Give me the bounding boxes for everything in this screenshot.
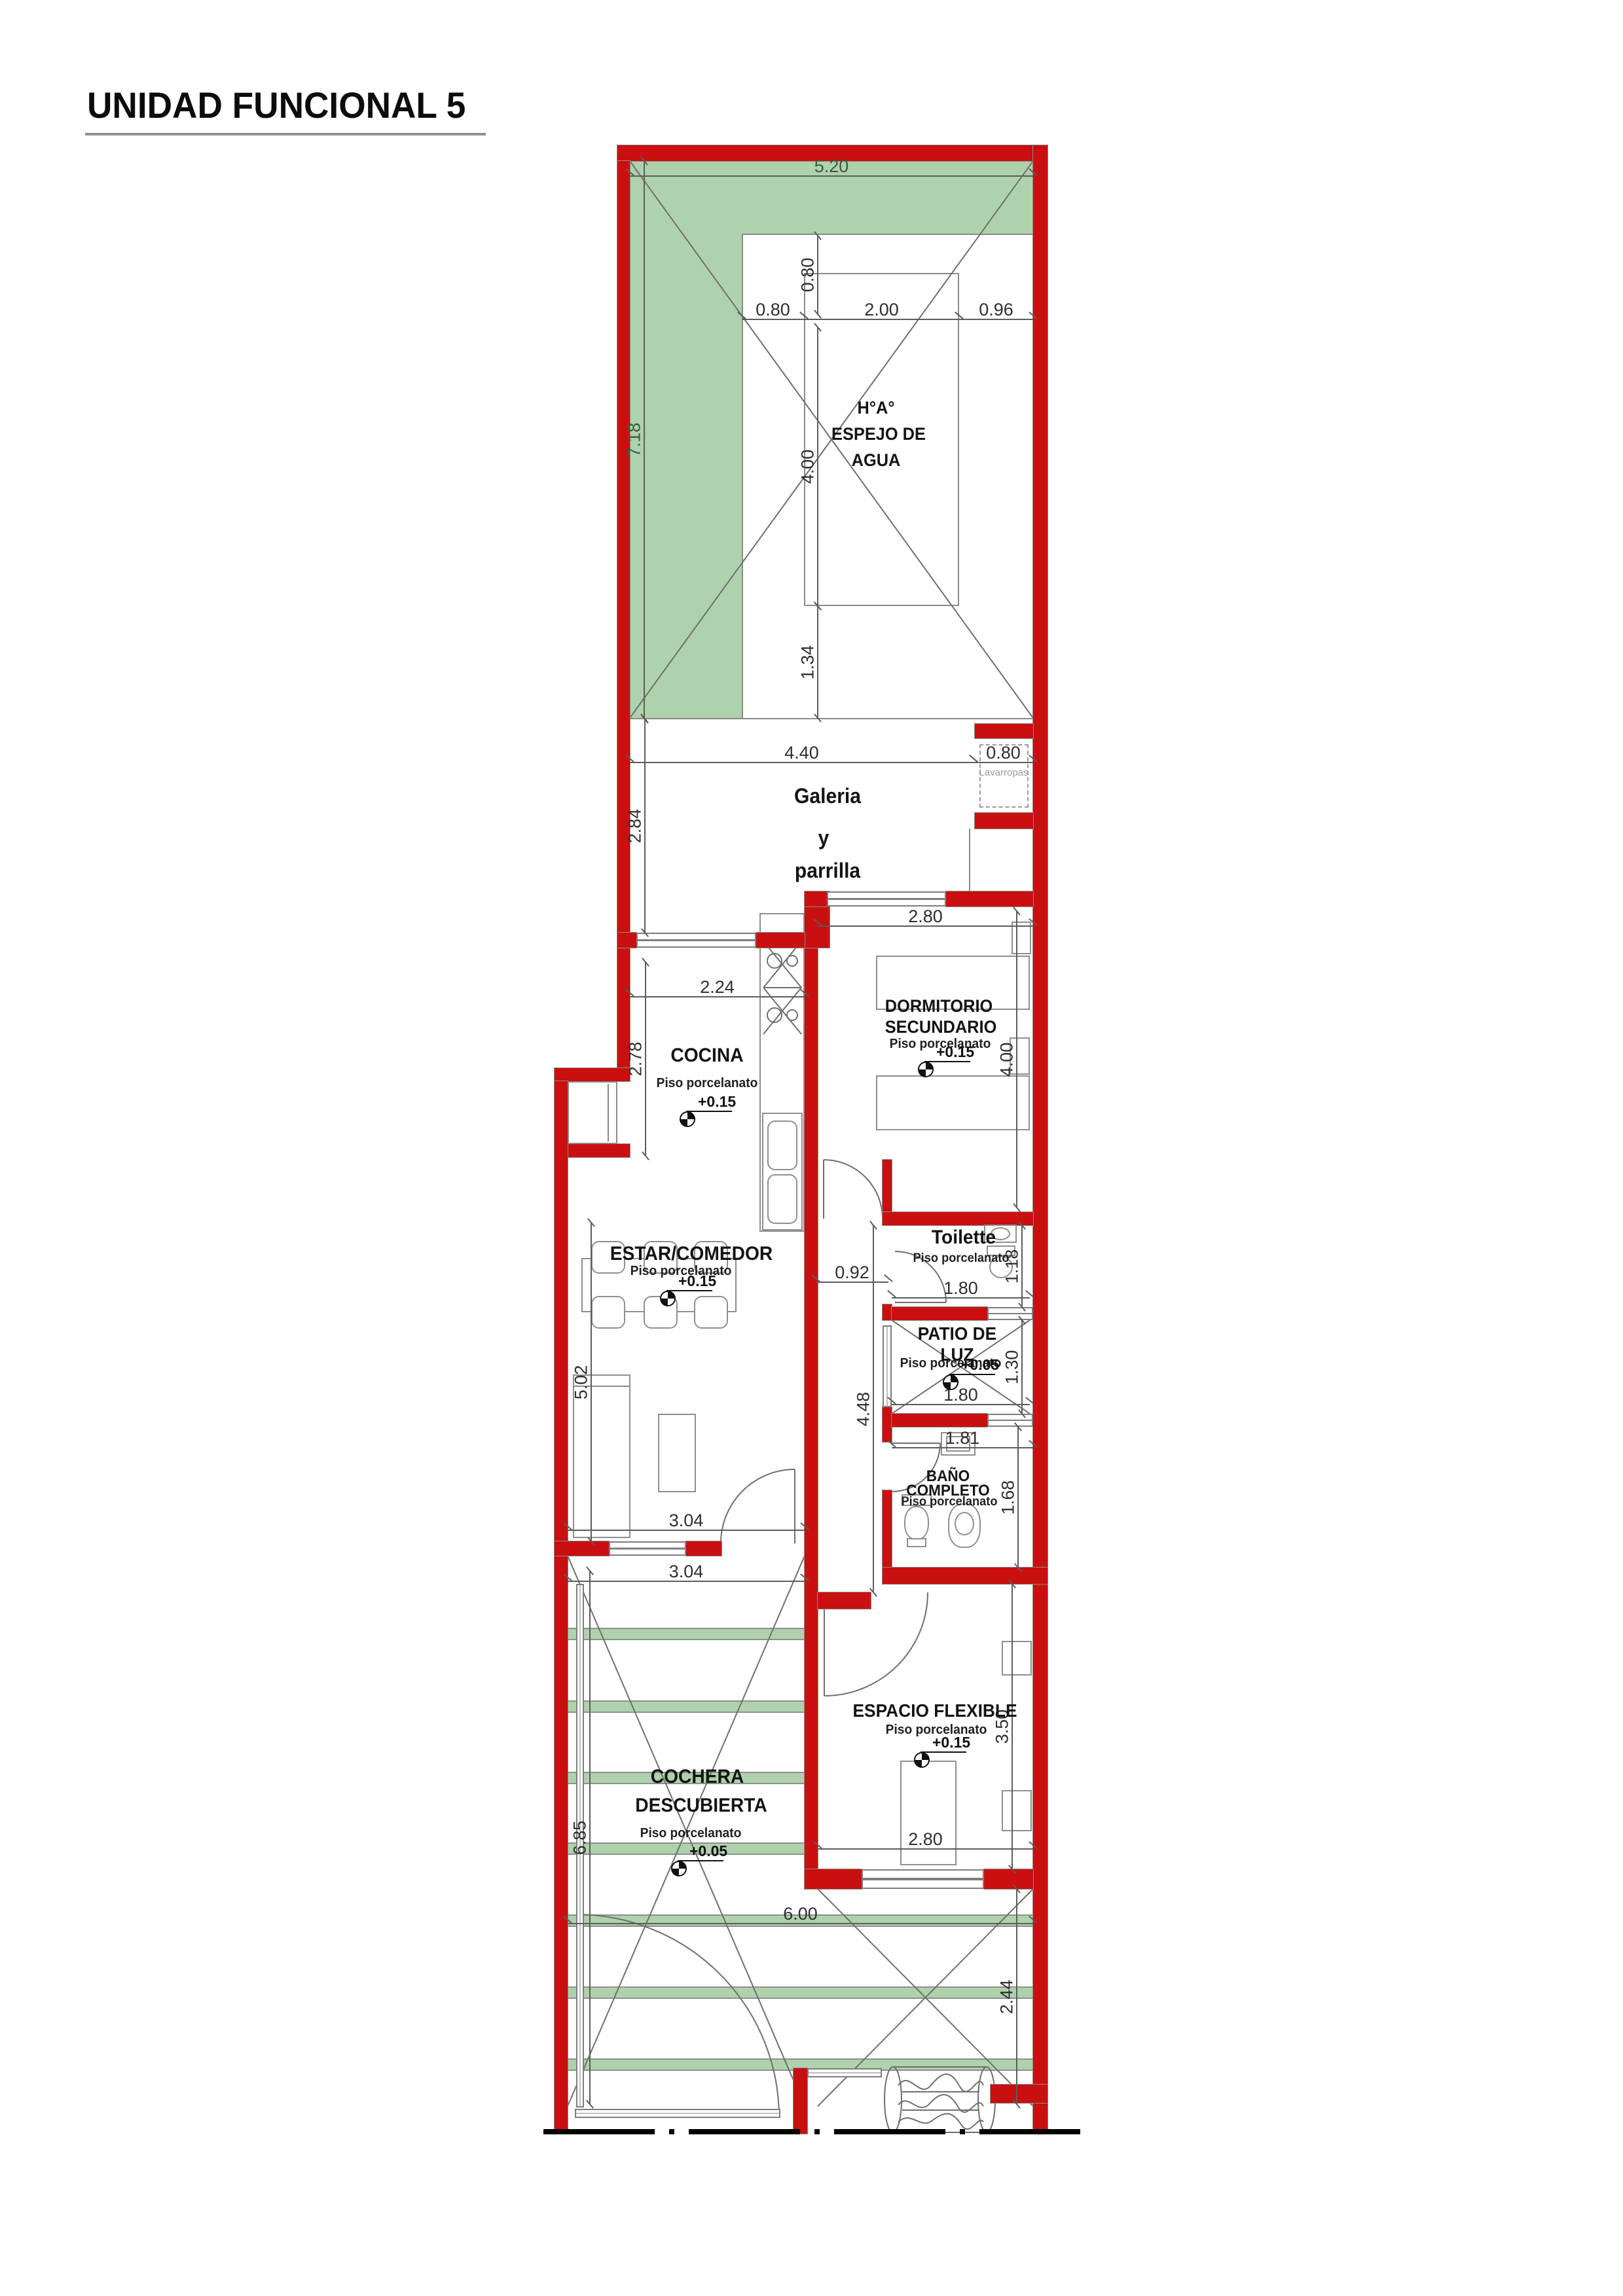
label-estar: ESTAR/COMEDOR xyxy=(610,1243,773,1265)
dim-pool-width: 2.00 xyxy=(804,319,959,320)
wall-middle xyxy=(805,891,818,1884)
dim-dorm-width: 2.80 xyxy=(818,925,1033,927)
dim-pool-right-offset: 0.96 xyxy=(959,319,1033,320)
gate-post xyxy=(793,2068,807,2134)
dim-dorm-height: 4.00 xyxy=(1016,911,1017,1208)
dim-pool-height: 4.00 xyxy=(817,327,818,606)
lavarropas-side-line xyxy=(969,829,970,891)
wall-estar-south-left xyxy=(555,1541,609,1556)
dim-bano-width: 1.81 xyxy=(892,1447,1033,1448)
flex-room-cabinet xyxy=(1002,1790,1032,1831)
pedestrian-gate xyxy=(807,2068,882,2077)
dim-frente-height: 2.44 xyxy=(1016,1889,1017,2104)
side-table xyxy=(658,1414,696,1492)
galeria-boundary-line xyxy=(630,718,1033,719)
dim-terrace-height: 7.18 xyxy=(644,161,645,718)
dim-estar-width: 3.04 xyxy=(568,1530,805,1531)
flex-room-cabinet xyxy=(1002,1641,1032,1676)
label-cochera-2: DESCUBIERTA xyxy=(635,1795,767,1817)
wall-espacio-south-right xyxy=(984,1869,1033,1889)
cocina-level-symbol: +0.15 xyxy=(680,1111,695,1127)
property-line xyxy=(543,2129,1080,2134)
label-cochera-1: COCHERA xyxy=(651,1766,744,1788)
label-cocina: COCINA xyxy=(670,1045,743,1067)
kitchen-sink-bowl xyxy=(767,1121,797,1170)
wall-dorm-south xyxy=(883,1212,1033,1225)
window-patio-north xyxy=(987,1307,1033,1320)
window-dorm-north xyxy=(827,891,946,906)
wall-left-lower xyxy=(555,1081,568,2132)
wall-espacio-south-left xyxy=(805,1869,862,1889)
wall-dorm-north-right xyxy=(946,891,1033,906)
wall-estar-south-mid xyxy=(686,1541,721,1556)
label-bano-floor: Piso porcelanato xyxy=(902,1495,998,1509)
dim-pool-top-offset: 0.80 xyxy=(817,236,818,314)
wall-lavarropas-bottom xyxy=(975,813,1033,829)
wall-toilette-west-stub xyxy=(883,1304,892,1320)
wall-lavarropas-top xyxy=(975,724,1033,738)
dim-galeria-width: 4.40 xyxy=(630,762,974,763)
left-niche-door-line xyxy=(608,1084,609,1141)
wall-right xyxy=(1033,145,1048,2132)
label-toilette-floor: Piso porcelanato xyxy=(913,1251,1010,1266)
label-galeria-2: y xyxy=(818,826,830,850)
page-title: UNIDAD FUNCIONAL 5 xyxy=(87,84,465,126)
dim-cochera-height: 6.85 xyxy=(589,1571,591,2104)
estar-level-symbol: +0.15 xyxy=(660,1291,676,1306)
dim-patio-height: 1.30 xyxy=(1021,1320,1023,1414)
label-toilette: Toilette xyxy=(932,1227,996,1249)
dim-espacio-height: 3.50 xyxy=(1012,1584,1013,1869)
bano-wc-base xyxy=(907,1538,926,1547)
wall-bano-west xyxy=(883,1490,892,1569)
bano-bidet-bowl xyxy=(955,1512,974,1535)
label-galeria-1: Galeria xyxy=(794,784,861,808)
wall-bano-south xyxy=(883,1568,1048,1584)
dining-chair xyxy=(694,1296,728,1329)
cochera-stripe xyxy=(568,1700,805,1713)
dorm-level-symbol: +0.15 xyxy=(918,1062,934,1077)
driveway-stripe xyxy=(568,1986,1033,1999)
dorm-bed xyxy=(876,1075,1030,1130)
wall-cocina-north-left xyxy=(617,933,636,948)
label-cochera-floor: Piso porcelanato xyxy=(640,1826,742,1841)
wall-patio-west xyxy=(883,1407,892,1442)
window-cocina-north xyxy=(636,933,756,948)
wall-entry-corner xyxy=(991,2085,1048,2103)
dim-terrace-width: 5.20 xyxy=(630,175,1033,177)
title-underline xyxy=(85,133,486,135)
front-fence xyxy=(575,2109,780,2118)
label-lavarropas: Lavarropas xyxy=(979,767,1028,778)
dim-lavarropas-width: 0.80 xyxy=(974,762,1033,763)
dim-cocina-width: 2.24 xyxy=(630,996,805,997)
label-dorm-1: DORMITORIO xyxy=(885,996,993,1016)
wall-pasillo-bottom xyxy=(818,1592,871,1609)
label-galeria-3: parrilla xyxy=(795,859,860,883)
dim-estar-height: 5.02 xyxy=(591,1223,592,1541)
label-espejo-2: ESPEJO DE xyxy=(831,424,926,444)
wall-left-jog xyxy=(555,1068,630,1081)
wall-dorm-north xyxy=(805,891,827,906)
wall-patio-south xyxy=(892,1414,987,1427)
cochera-level-symbol: +0.05 xyxy=(671,1861,687,1876)
dim-espacio-width: 2.80 xyxy=(818,1848,1033,1850)
label-dorm-2: SECUNDARIO xyxy=(885,1017,997,1037)
cochera-stripe xyxy=(568,1628,805,1640)
dim-toilette-height: 1.18 xyxy=(1021,1225,1023,1307)
dining-chair xyxy=(591,1296,625,1329)
dim-pasillo-width: 0.92 xyxy=(816,1282,888,1283)
patio-level-symbol: +0.05 xyxy=(943,1374,958,1390)
label-espejo-1: H°A° xyxy=(858,398,895,418)
dim-cochera-width: 3.04 xyxy=(568,1581,805,1582)
window-espacio-south xyxy=(862,1869,984,1889)
left-niche xyxy=(568,1081,617,1144)
dim-galeria-height: 2.84 xyxy=(644,719,646,933)
floor-plan-sheet: UNIDAD FUNCIONAL 5 xyxy=(0,0,1623,2296)
dim-frente-width: 6.00 xyxy=(568,1923,1033,1924)
dim-pasillo-height: 4.48 xyxy=(873,1225,874,1592)
dim-pool-bottom-offset: 1.34 xyxy=(817,606,818,718)
cochera-stripe xyxy=(568,1842,805,1855)
flex-room-desk xyxy=(900,1761,957,1865)
label-espejo-3: AGUA xyxy=(852,450,901,471)
wall-patio-north xyxy=(892,1307,987,1320)
dim-bano-height: 1.68 xyxy=(1017,1427,1019,1568)
label-cocina-floor: Piso porcelanato xyxy=(657,1076,758,1091)
label-patio-1: PATIO DE xyxy=(918,1323,996,1344)
dim-patio-width: 1.80 xyxy=(892,1404,1030,1405)
kitchen-sink-bowl xyxy=(767,1174,797,1224)
window-patio-south xyxy=(987,1414,1033,1427)
dim-pool-left-offset: 0.80 xyxy=(742,319,804,320)
bano-wc-bowl xyxy=(904,1506,929,1540)
wall-niche-bottom xyxy=(568,1144,630,1157)
label-espacio: ESPACIO FLEXIBLE xyxy=(852,1700,1017,1721)
dim-toilette-width: 1.80 xyxy=(892,1297,1030,1299)
window-estar-south xyxy=(609,1541,686,1556)
dim-cocina-height: 2.78 xyxy=(645,962,646,1156)
espacio-level-symbol: +0.15 xyxy=(914,1752,930,1768)
window-patio-west xyxy=(883,1325,892,1407)
wall-cocina-north-right xyxy=(756,933,805,948)
